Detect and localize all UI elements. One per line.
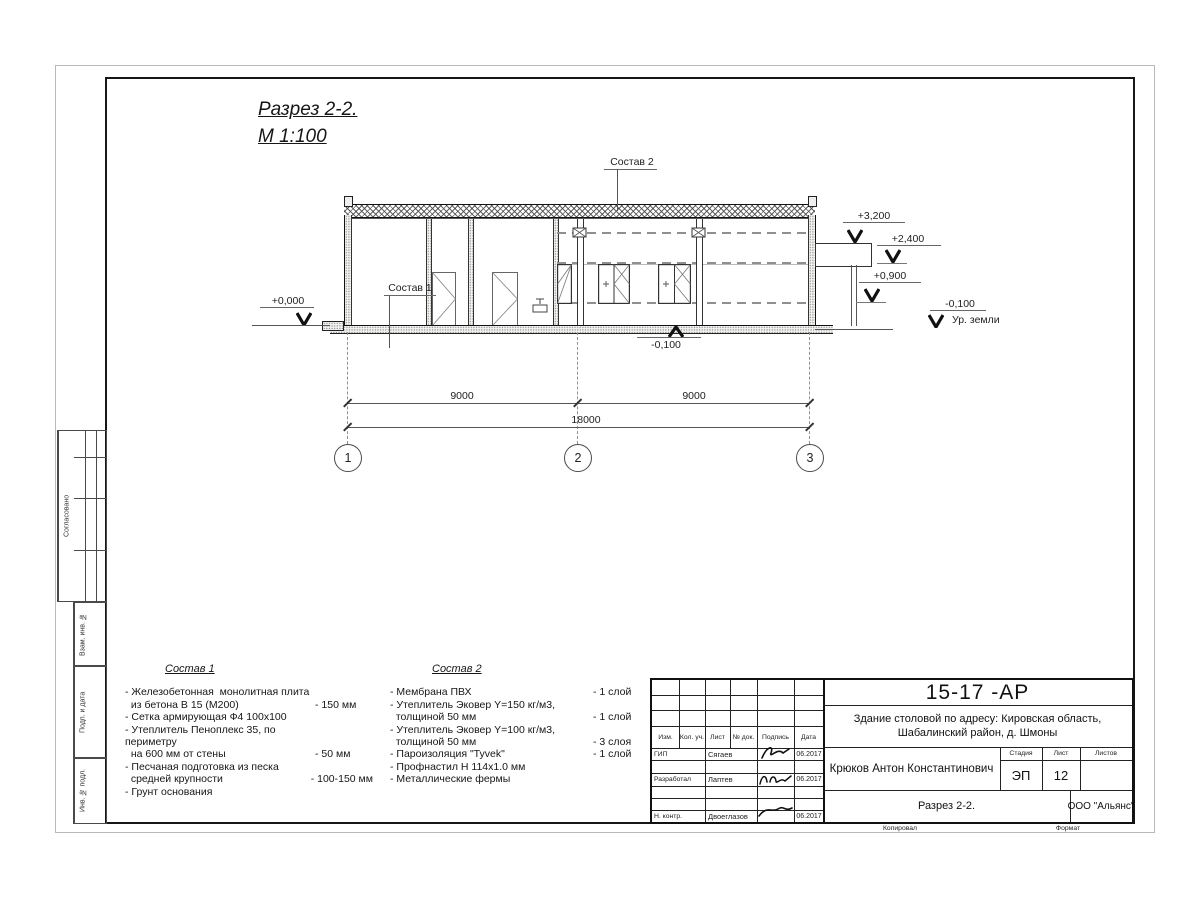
approval-label: Согласовано: [58, 431, 75, 601]
tb-stage-value: ЭП: [1000, 760, 1042, 790]
drawing-sheet: Согласовано Взам. инв. № Подп. и дата Ин…: [0, 0, 1200, 900]
level-0900-line: [856, 302, 886, 303]
view-title: Разрез 2-2. М 1:100: [258, 96, 357, 150]
level-0000-line: [252, 325, 330, 326]
vzam-inv-box: Взам. инв. №: [73, 602, 107, 667]
list-item: - Сетка армирующая Ф4 100х100: [125, 711, 373, 723]
level-2400-arrow-icon: [885, 249, 901, 263]
tb-col-ndok: № док.: [730, 726, 757, 748]
callout-sostav1-underline: [384, 295, 436, 296]
level-2400-underline: [877, 245, 941, 246]
roof-slab: [344, 204, 815, 218]
level-2400-label: +2,400: [880, 233, 936, 245]
tb-doc-number: 15-17 -АР: [823, 680, 1132, 705]
list-item: - Железобетонная монолитная плита из бет…: [125, 686, 373, 711]
inv-podl-label: Инв. № подл.: [74, 758, 91, 823]
callout-sostav1-label: Состав 1: [386, 282, 434, 294]
view-title-line2: М 1:100: [258, 126, 327, 147]
dim-line-1: [347, 403, 810, 404]
axis-bubble-2: 2: [564, 444, 592, 472]
tb-date-razrabotal: 06.2017: [795, 773, 823, 786]
list-item: - Металлические фермы: [390, 773, 645, 785]
inv-podl-box: Инв. № подл.: [73, 757, 107, 824]
list-item: - Грунт основания: [125, 786, 373, 798]
list-item: - Мембрана ПВХ- 1 слой: [390, 686, 645, 698]
format-caption: Формат: [1028, 823, 1108, 833]
tb-sheets-label: Листов: [1080, 747, 1132, 760]
dim-label-left: 9000: [432, 390, 492, 402]
sostav2-title: Состав 2: [432, 663, 645, 675]
level-0000-arrow-icon: [296, 312, 312, 326]
tb-role-nkontr: Н. контр.: [654, 810, 704, 822]
level-m0100-center-label: -0,100: [638, 339, 694, 351]
list-item: - Утеплитель Эковер Y=100 кг/м3, толщино…: [390, 724, 645, 749]
axis-bubble-3: 3: [796, 444, 824, 472]
signature-gip: [758, 743, 792, 762]
level-0900-label: +0,900: [862, 270, 918, 282]
approval-box: Согласовано: [57, 430, 107, 602]
copied-caption: Копировал: [850, 823, 950, 833]
sostav1-title: Состав 1: [165, 663, 373, 675]
floor-slab: [330, 325, 833, 334]
tb-sheet-value: 12: [1042, 760, 1080, 790]
level-3200-underline: [843, 222, 905, 223]
exterior-wall-right: [808, 215, 816, 326]
floor-ledge-left: [322, 321, 344, 331]
podp-data-box: Подп. и дата: [73, 665, 107, 759]
callout-sostav2-label: Состав 2: [604, 156, 660, 168]
exterior-wall-left: [344, 215, 352, 326]
tb-name-razrabotal: Лаптев: [708, 773, 756, 786]
view-title-line1: Разрез 2-2.: [258, 99, 357, 120]
callout-sostav2-leader: [617, 169, 618, 211]
canopy: [815, 243, 872, 267]
level-m0100-center-line: [637, 337, 701, 338]
ground-line-right: [815, 329, 893, 330]
ground-level-label: Ур. земли: [952, 314, 1000, 326]
sostav2-list: Состав 2 - Мембрана ПВХ- 1 слой - Утепли…: [390, 663, 645, 786]
list-item: - Утеплитель Эковер Y=150 кг/м3, толщино…: [390, 699, 645, 724]
canopy-post: [851, 265, 857, 326]
window-1: [598, 264, 630, 304]
callout-sostav2-underline: [604, 169, 657, 170]
level-3200-label: +3,200: [846, 210, 902, 222]
level-2400-line: [877, 263, 907, 264]
parapet-left: [344, 196, 353, 207]
title-block: Изм. Кол. уч. Лист № док. Подпись Дата Г…: [650, 678, 1134, 824]
podp-data-label: Подп. и дата: [74, 666, 91, 758]
door-1: [432, 272, 456, 326]
tb-role-razrabotal: Разработал: [654, 773, 704, 786]
tb-col-koluch: Кол. уч.: [679, 726, 705, 748]
tb-col-list: Лист: [705, 726, 730, 748]
dim-line-2: [347, 427, 810, 428]
level-m0100-right-underline: [930, 310, 986, 311]
tb-name-gip: Сягаев: [708, 748, 756, 760]
tb-stage-label: Стадия: [1000, 747, 1042, 760]
tb-role-gip: ГИП: [654, 748, 704, 760]
tb-col-izm: Изм.: [652, 726, 679, 748]
axis-bubble-1: 1: [334, 444, 362, 472]
girt-line-1: [557, 232, 808, 234]
level-0000-underline: [260, 307, 314, 308]
list-item: - Песчаная подготовка из песка средней к…: [125, 761, 373, 786]
tb-object-name: Здание столовой по адресу: Кировская обл…: [823, 705, 1132, 747]
tb-author: Крюков Антон Константинович: [823, 747, 1000, 790]
column-cap-1: [572, 227, 587, 238]
window-2: [658, 264, 691, 304]
tb-object-line2: Шабалинский район, д. Шмоны: [898, 726, 1058, 740]
tb-company: ООО "Альянс": [1070, 790, 1132, 822]
level-0900-underline: [859, 282, 921, 283]
level-m0100-right-label: -0,100: [932, 298, 988, 310]
partition-2: [468, 219, 474, 326]
dim-label-right: 9000: [664, 390, 724, 402]
signature-nkontr: [756, 800, 794, 820]
callout-sostav1-leader: [389, 296, 390, 348]
window-partial: [557, 264, 572, 304]
tb-date-gip: 06.2017: [795, 748, 823, 760]
list-item: - Утеплитель Пеноплекс 35, по периметру …: [125, 724, 373, 761]
level-m0100-right-arrow-icon: [928, 314, 944, 328]
tb-name-nkontr: Двоеглазов: [708, 810, 756, 822]
column-cap-2: [691, 227, 706, 238]
dim-label-total: 18000: [556, 414, 616, 426]
signature-razrabotal: [757, 769, 793, 788]
level-0900-arrow-icon: [864, 288, 880, 302]
sink-icon: [530, 298, 550, 314]
tb-sheet-label: Лист: [1042, 747, 1080, 760]
level-3200-arrow-icon: [847, 229, 863, 243]
parapet-right: [808, 196, 817, 207]
list-item: - Пароизоляция "Tyvek"- 1 слой: [390, 748, 645, 760]
tb-object-line1: Здание столовой по адресу: Кировская обл…: [854, 712, 1102, 726]
sostav1-list: Состав 1 - Железобетонная монолитная пли…: [125, 663, 373, 798]
vzam-inv-label: Взам. инв. №: [74, 603, 91, 666]
tb-date-nkontr: 06.2017: [795, 810, 823, 822]
list-item: - Профнастил Н 114х1.0 мм: [390, 761, 645, 773]
level-0000-label: +0,000: [260, 295, 316, 307]
tb-section-name: Разрез 2-2.: [823, 790, 1070, 822]
tb-col-data: Дата: [794, 726, 823, 748]
door-2: [492, 272, 518, 326]
